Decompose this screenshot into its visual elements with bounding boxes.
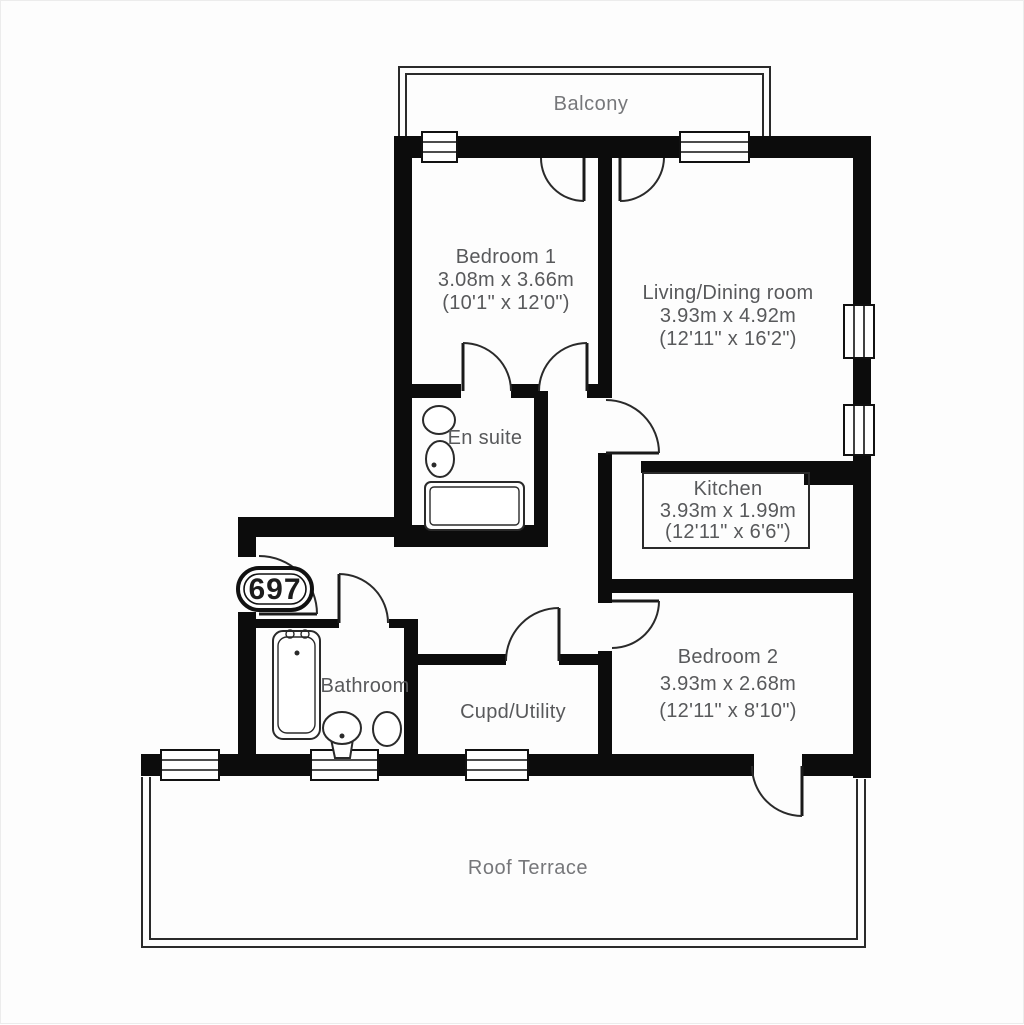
bedroom1-dim-imperial: (10'1" x 12'0") [442, 292, 570, 314]
balcony-label: Balcony [554, 93, 629, 115]
door-cupd [506, 608, 559, 661]
door-hall-living [606, 400, 659, 453]
cupd-label: Cupd/Utility [460, 701, 566, 723]
door-bedroom2 [612, 601, 659, 648]
kitchen-dim-imperial: (12'11" x 6'6") [665, 521, 791, 543]
roof-terrace-label: Roof Terrace [468, 857, 588, 879]
bathroom-label: Bathroom [320, 675, 409, 697]
bedroom1-label: Bedroom 1 [456, 246, 557, 268]
ensuite-label: En suite [448, 427, 523, 449]
window-symbol [422, 132, 457, 162]
living-label: Living/Dining room [642, 282, 813, 304]
shower-tray-icon [425, 482, 524, 530]
bedroom1-dim-metric: 3.08m x 3.66m [438, 269, 574, 291]
door-balcony-bedroom1 [541, 158, 584, 201]
bedroom2-dim-imperial: (12'11" x 8'10") [659, 700, 796, 722]
door-ensuite [463, 343, 511, 391]
toilet-icon [373, 712, 401, 746]
door-balcony-living [620, 158, 664, 201]
window-symbol [466, 750, 528, 780]
kitchen-label: Kitchen [694, 478, 763, 500]
unit-number-badge: 697 [238, 568, 312, 610]
window-symbol [844, 305, 874, 358]
unit-number: 697 [248, 573, 301, 606]
bedroom2-dim-metric: 3.93m x 2.68m [660, 673, 796, 695]
window-symbol [161, 750, 219, 780]
kitchen-dim-metric: 3.93m x 1.99m [660, 500, 796, 522]
living-dim-metric: 3.93m x 4.92m [660, 305, 796, 327]
window-symbol [680, 132, 749, 162]
living-dim-imperial: (12'11" x 16'2") [659, 328, 796, 350]
bathtub-icon [273, 630, 320, 739]
floorplan-page: 697 Balcony Bedroom 1 3.08m x 3.66m (10'… [0, 0, 1024, 1024]
ensuite-fixtures [423, 406, 524, 530]
floorplan-drawing: 697 Balcony Bedroom 1 3.08m x 3.66m (10'… [1, 1, 1024, 1025]
door-bedroom2-terrace [752, 766, 802, 816]
bedroom2-label: Bedroom 2 [678, 646, 779, 668]
door-bathroom [339, 574, 388, 623]
window-symbol [844, 405, 874, 455]
door-bedroom1-hall [539, 343, 587, 391]
